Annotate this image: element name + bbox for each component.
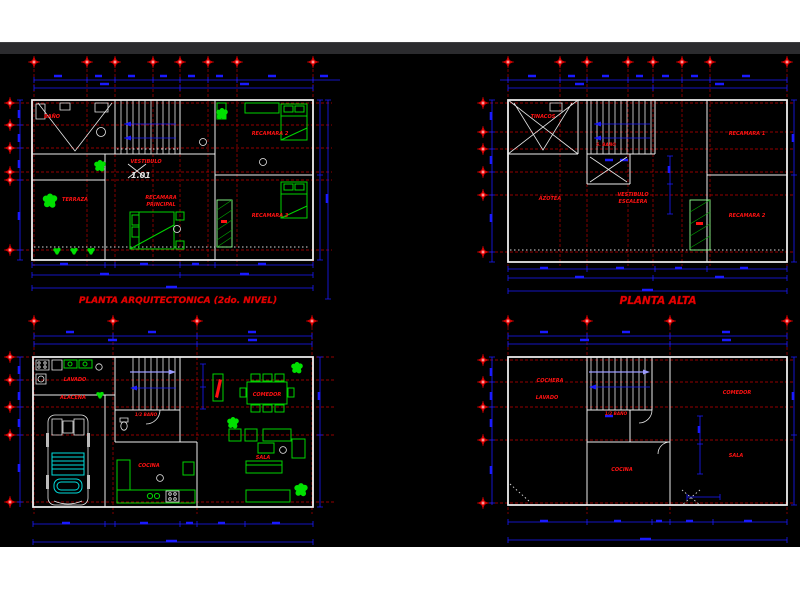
cad-drawing-canvas[interactable]: 1.01 BAÑO VESTIBULO RECAMARA PRINCIPAL T… — [0, 54, 800, 547]
car — [46, 415, 90, 505]
grid-axis-lines — [490, 327, 795, 514]
floorplan-ground-level: LAVADO ALACENA 1/2 BAÑO COCINA COMEDOR S… — [0, 314, 400, 547]
room-label-laundry: LAVADO — [536, 395, 559, 401]
room-label-bedroom2: RECAMARA 2 — [729, 213, 766, 219]
plants — [43, 108, 228, 255]
room-label-hall-1: VESTIBULO — [617, 192, 649, 198]
floorplan-second-level: 1.01 BAÑO VESTIBULO RECAMARA PRINCIPAL T… — [0, 54, 400, 314]
bathroom-fixtures — [36, 103, 112, 151]
room-label-kitchen: COCINA — [611, 467, 633, 473]
grid-axis-markers — [4, 56, 319, 256]
cad-window: 1.01 BAÑO VESTIBULO RECAMARA PRINCIPAL T… — [0, 0, 800, 600]
closet-hatch — [217, 200, 232, 247]
level-mark: 1.01 — [131, 171, 151, 180]
room-labels: TINACOS S. BAÑO VESTIBULO ESCALERA AZOTE… — [531, 114, 766, 219]
room-label-hall-2: ESCALERA — [619, 199, 648, 205]
staircase — [589, 357, 650, 410]
room-label-half-bath: 1/2 BAÑO — [605, 411, 628, 416]
room-label-living: SALA — [729, 453, 744, 459]
room-label-bedroom2: RECAMARA 2 — [252, 131, 289, 137]
staircase — [130, 357, 176, 410]
room-label-bedroom1: RECAMARA 1 — [729, 131, 766, 137]
grid-axis-lines — [16, 327, 335, 514]
room-labels: LAVADO ALACENA 1/2 BAÑO COCINA COMEDOR S… — [59, 377, 281, 469]
room-label-roof: AZOTEA — [538, 196, 562, 202]
floorplan-planta-alta: TINACOS S. BAÑO VESTIBULO ESCALERA AZOTE… — [400, 54, 800, 314]
room-label-dining: COMEDOR — [723, 390, 752, 396]
room-label-tanks: TINACOS — [531, 114, 556, 120]
staircase — [590, 100, 651, 182]
living-set — [229, 429, 305, 502]
water-tank — [508, 100, 578, 154]
room-label-master-1: RECAMARA — [145, 195, 177, 201]
room-label-pantry: ALACENA — [59, 395, 86, 401]
floorplan-planta-baja: COCHERA LAVADO 1/2 BAÑO COCINA COMEDOR S… — [400, 314, 800, 547]
plan-title-planta-alta: PLANTA ALTA — [620, 295, 697, 307]
room-label-kitchen: COCINA — [138, 463, 160, 469]
plan-title-second-level: PLANTA ARQUITECTONICA (2do. NIVEL) — [79, 296, 277, 306]
grid-axis-markers — [477, 56, 793, 258]
room-label-bedroom3: RECAMARA 3 — [252, 213, 289, 219]
room-label-terrace: TERRAZA — [62, 197, 88, 203]
room-label-bath: S. BAÑO — [596, 142, 616, 147]
dimension-lines — [489, 332, 797, 543]
room-labels: COCHERA LAVADO 1/2 BAÑO COCINA COMEDOR S… — [536, 378, 752, 473]
room-label-hall: VESTIBULO — [130, 159, 162, 165]
room-label-master-2: PRINCIPAL — [146, 202, 175, 208]
grid-axis-lines — [490, 69, 795, 266]
room-label-half-bath: 1/2 BAÑO — [135, 412, 158, 417]
room-label-dining: COMEDOR — [253, 392, 282, 398]
room-labels: BAÑO VESTIBULO RECAMARA PRINCIPAL TERRAZ… — [44, 113, 289, 219]
room-label-bath: BAÑO — [44, 113, 61, 120]
staircase — [117, 100, 178, 154]
room-label-laundry: LAVADO — [64, 377, 87, 383]
dimension-lines — [17, 332, 323, 545]
room-label-garage: COCHERA — [537, 378, 564, 384]
room-label-living: SALA — [256, 455, 271, 461]
door-tags — [128, 139, 267, 233]
dimension-lines — [17, 76, 340, 299]
